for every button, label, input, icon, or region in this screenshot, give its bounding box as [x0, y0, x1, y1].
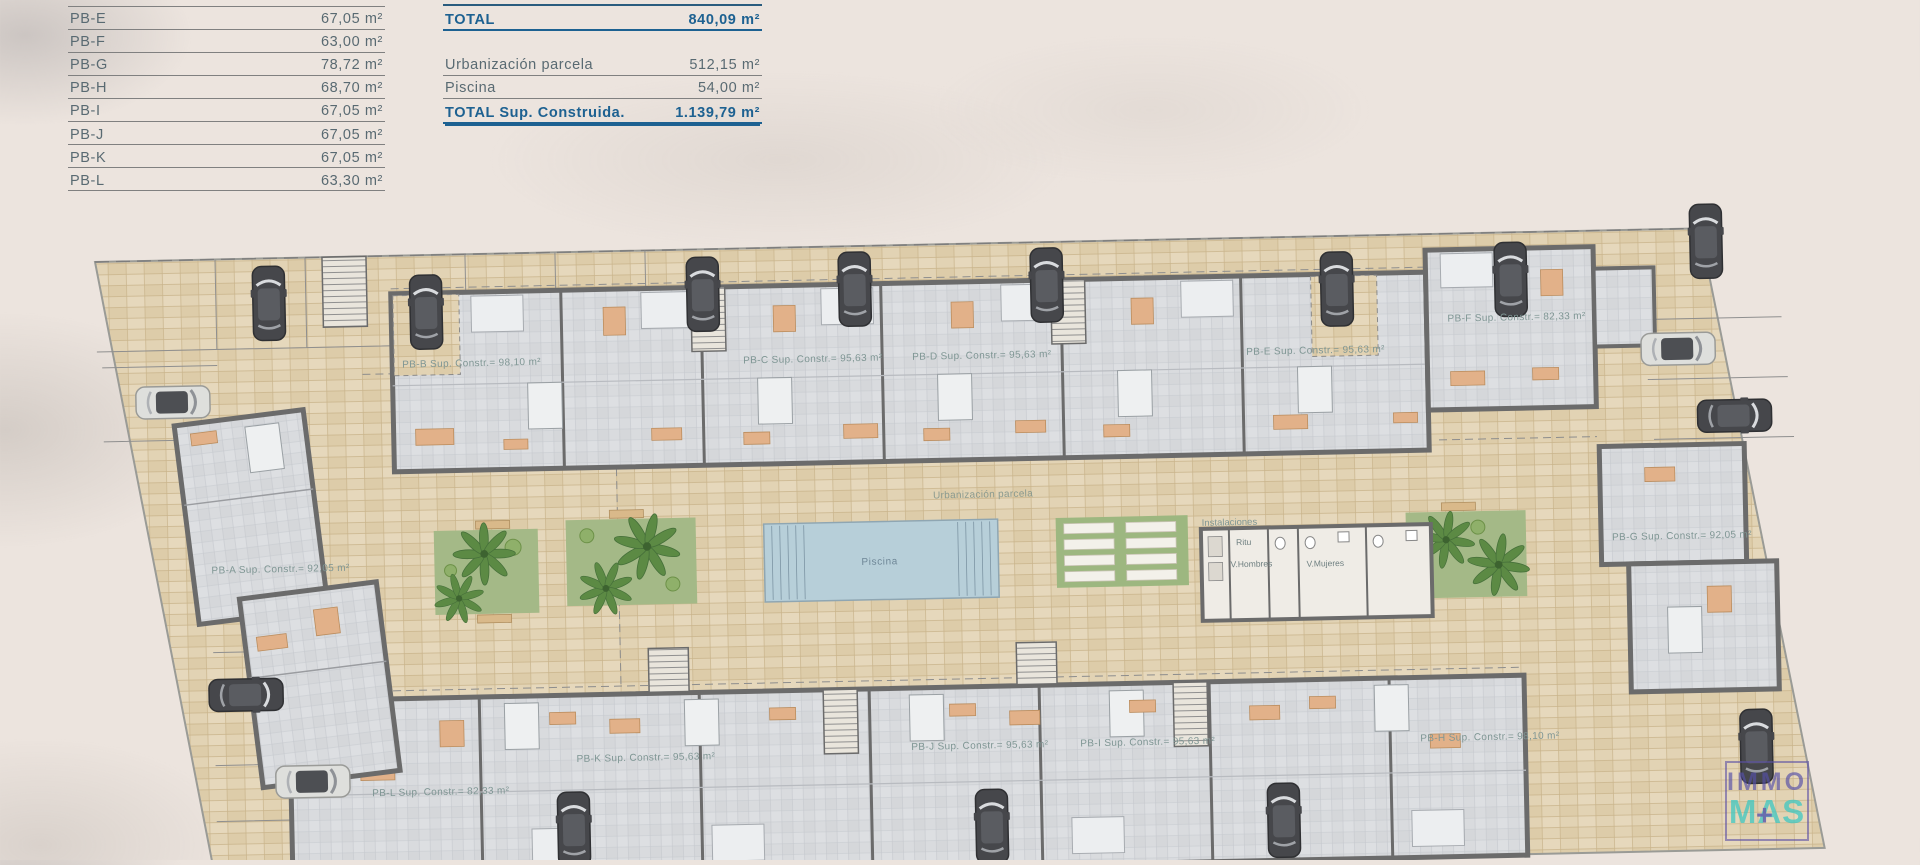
unit-area: 63,00 m²	[321, 34, 383, 50]
table-gap	[443, 31, 762, 53]
pergola	[1056, 515, 1189, 588]
car-icon	[555, 792, 593, 860]
total-label: TOTAL	[445, 12, 495, 28]
row-value: 512,15 m²	[689, 57, 760, 73]
table-row: PB-L 63,30 m²	[68, 168, 385, 191]
table-row: PB-G 78,72 m²	[68, 53, 385, 76]
urbanizacion-label: Urbanización parcela	[933, 488, 1033, 501]
table-row: PB-E 67,05 m²	[68, 7, 385, 30]
logo-plus-icon: +	[1756, 800, 1773, 833]
row-label: Urbanización parcela	[445, 57, 593, 73]
unit-code: PB-L	[70, 173, 105, 189]
car-icon	[836, 252, 874, 327]
car-icon	[136, 386, 211, 420]
unit-area: 67,05 m²	[321, 103, 383, 119]
car-icon	[1028, 248, 1066, 323]
total-value: 840,09 m²	[689, 12, 761, 28]
unit-code: PB-G	[70, 57, 108, 73]
building-bottom	[289, 675, 1527, 860]
unit-area: 63,30 m²	[321, 173, 383, 189]
table-row: Piscina 54,00 m²	[443, 76, 762, 99]
logo-immo-text: IMMO	[1727, 770, 1807, 795]
stairs	[322, 256, 367, 327]
unit-area: 67,05 m²	[321, 150, 383, 166]
stairs	[1016, 642, 1057, 685]
car-icon	[1265, 783, 1303, 858]
room-label-hombres: V.Hombres	[1230, 558, 1272, 569]
unit-code: PB-I	[70, 103, 101, 119]
car-icon	[684, 257, 722, 332]
table-row: Urbanización parcela 512,15 m²	[443, 53, 762, 76]
unit-area: 78,72 m²	[321, 57, 383, 73]
area-table: PB-E 67,05 m² PB-F 63,00 m² PB-G 78,72 m…	[68, 0, 385, 191]
total-row: TOTAL 840,09 m²	[443, 4, 762, 32]
room-label-mujeres: V.Mujeres	[1306, 558, 1344, 569]
instalaciones-label: Instalaciones	[1202, 517, 1258, 529]
unit-area: 67,05 m²	[321, 127, 383, 143]
unit-code: PB-K	[70, 150, 106, 166]
table-row: PB-F 63,00 m²	[68, 30, 385, 53]
table-row: PB-K 67,05 m²	[68, 145, 385, 168]
car-icon	[209, 676, 284, 714]
table-row: PB-H 68,70 m²	[68, 76, 385, 99]
car-icon	[250, 266, 288, 341]
car-icon	[407, 275, 445, 350]
grand-total-label: TOTAL Sup. Construida.	[445, 105, 625, 121]
table-row: PB-I 67,05 m²	[68, 99, 385, 122]
car-icon	[1697, 397, 1772, 435]
piscina-label: Piscina	[861, 556, 898, 568]
grand-total-value: 1.139,79 m²	[675, 105, 760, 121]
unit-area: 67,05 m²	[321, 11, 383, 27]
row-label: Piscina	[445, 80, 496, 96]
stairs	[648, 648, 689, 693]
unit-code: PB-F	[70, 34, 105, 50]
car-icon	[276, 765, 351, 799]
unit-code: PB-J	[70, 127, 104, 143]
grand-total-row: TOTAL Sup. Construida. 1.139,79 m²	[443, 99, 762, 125]
car-icon	[1687, 204, 1725, 279]
car-icon	[973, 789, 1011, 860]
unit-area: 68,70 m²	[321, 80, 383, 96]
table-row: PB-J 67,05 m²	[68, 122, 385, 145]
totals-table: TOTAL 840,09 m² Urbanización parcela 512…	[443, 0, 762, 124]
car-icon	[1641, 332, 1716, 366]
unit-code: PB-E	[70, 11, 106, 27]
building-top	[391, 272, 1430, 472]
car-icon	[1492, 242, 1530, 317]
car-icon	[1318, 252, 1356, 327]
immomas-logo: IMMO MAS +	[1725, 761, 1809, 841]
unit-code: PB-H	[70, 80, 107, 96]
room-label-ritu: Ritu	[1236, 537, 1252, 547]
row-value: 54,00 m²	[698, 80, 760, 96]
